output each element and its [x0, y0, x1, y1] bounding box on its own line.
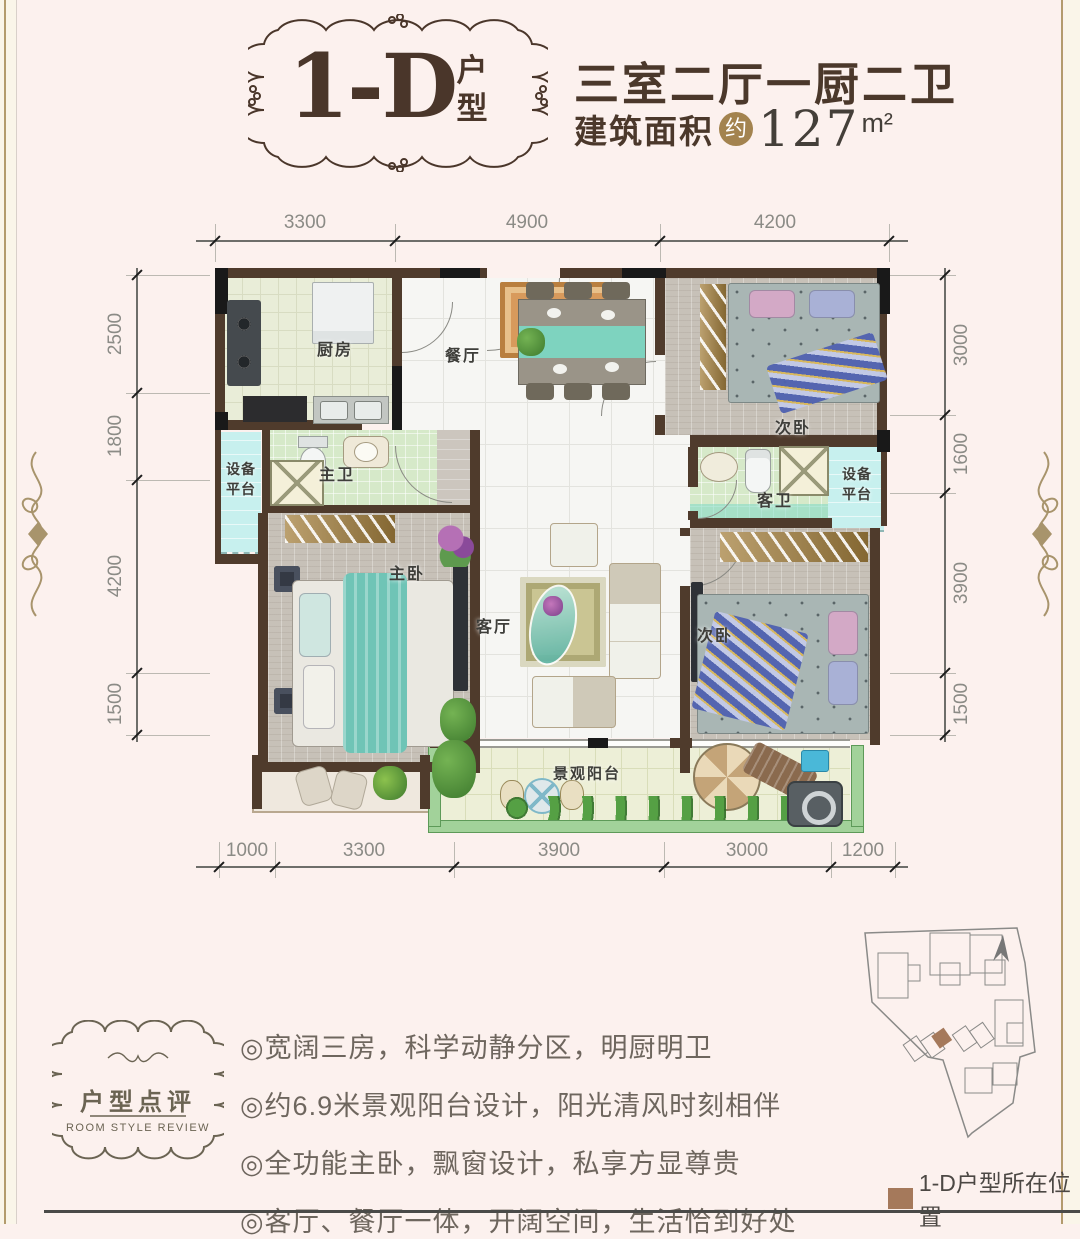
dim-top-3: 4200 — [754, 212, 796, 234]
balcony-rail-right — [851, 745, 864, 827]
badge-title: 户型点评 — [80, 1082, 196, 1117]
compass-arrow-icon — [993, 935, 1009, 962]
master-bath-shower — [270, 460, 324, 506]
master-wardrobe — [285, 515, 395, 543]
guest-bath-sink — [700, 452, 738, 482]
unit-type-label: 户 型 — [455, 52, 489, 128]
dim-right-4: 1500 — [951, 683, 973, 725]
living-window — [480, 739, 588, 748]
room-label-master-bedroom: 主卧 — [389, 560, 425, 584]
floor-plan: 厨房 餐厅 次卧 主卫 设备平台 主卧 客厅 客卫 设备平台 次卧 景观阳台 — [213, 266, 890, 832]
bottom-divider — [44, 1210, 1080, 1213]
fridge — [312, 282, 374, 344]
badge-subtitle: ROOM STYLE REVIEW — [66, 1122, 210, 1134]
legend-row: 1-D户型所在位置 — [888, 1164, 1080, 1232]
unit-type-char-2: 型 — [455, 90, 489, 128]
room-label-guest-bath: 客卫 — [757, 487, 793, 511]
ac-unit — [787, 781, 843, 827]
right-flourish-ornament-icon — [1010, 444, 1074, 624]
balcony-planter-row — [505, 796, 835, 820]
area-label: 建筑面积 — [574, 105, 714, 153]
room-label-dining: 餐厅 — [445, 342, 481, 366]
review-bullet-1: ◎宽阔三房，科学动静分区，明厨明卫 — [240, 1026, 797, 1065]
dining-table — [518, 299, 646, 385]
dim-left-1: 2500 — [105, 313, 127, 355]
sofa-right — [609, 563, 661, 679]
trefoil-left-icon — [249, 86, 260, 105]
dim-top-1: 3300 — [284, 212, 326, 234]
dim-right-2: 1600 — [951, 433, 973, 475]
unit-type-char-1: 户 — [455, 52, 489, 90]
master-bed — [292, 580, 454, 747]
area-unit: m² — [861, 108, 892, 151]
room-label-master-bath: 主卫 — [319, 461, 355, 485]
legend-swatch — [888, 1188, 913, 1209]
tv-cabinet — [453, 565, 468, 691]
review-bullet-3: ◎全功能主卧，飘窗设计，私享方显尊贵 — [240, 1142, 797, 1181]
review-bullets: ◎宽阔三房，科学动静分区，明厨明卫 ◎约6.9米景观阳台设计，阳光清风时刻相伴 … — [240, 1026, 797, 1239]
dim-bottom-2: 3300 — [343, 840, 385, 862]
dim-left-4: 1500 — [105, 683, 127, 725]
kitchen-sink — [313, 396, 389, 424]
dim-left-3: 4200 — [105, 555, 127, 597]
dim-left-2: 1800 — [105, 415, 127, 457]
room-label-balcony: 景观阳台 — [553, 763, 621, 784]
room-label-living: 客厅 — [476, 613, 512, 637]
dim-top-2: 4900 — [506, 212, 548, 234]
bay-plant — [373, 766, 407, 800]
room-label-kitchen: 厨房 — [317, 336, 353, 360]
review-bullet-4: ◎客厅、餐厅一体，开阔空间，生活恰到好处 — [240, 1200, 797, 1239]
hall-window — [608, 739, 670, 748]
armchair — [550, 523, 598, 567]
dim-bottom-1: 1000 — [226, 840, 268, 862]
review-badge: 户型点评 ROOM STYLE REVIEW — [52, 1020, 224, 1160]
coffee-table-flowers — [543, 596, 563, 616]
trefoil-right-icon — [536, 86, 547, 105]
dim-right-3: 3900 — [951, 562, 973, 604]
area-row: 建筑面积 约 127 m² — [574, 100, 893, 158]
room-label-bedroom2: 次卧 — [697, 622, 733, 646]
legend-label: 1-D户型所在位置 — [919, 1164, 1080, 1232]
room-label-bedroom1: 次卧 — [775, 414, 811, 438]
flower-pot-top — [438, 523, 474, 567]
page: { "header": { "unit_code": "1-D", "unit_… — [0, 0, 1080, 1224]
room-label-equipment-right: 设备平台 — [842, 464, 872, 504]
area-value: 127 — [758, 100, 859, 158]
balcony-shrub-left — [432, 740, 476, 798]
site-plan — [845, 905, 1055, 1145]
dim-bottom-4: 3000 — [726, 840, 768, 862]
bedroom1-wardrobe — [700, 284, 726, 390]
stove — [227, 300, 261, 386]
room-label-equipment-left: 设备平台 — [226, 459, 256, 499]
site-plan-unit-marker — [931, 1028, 952, 1049]
kitchen-counter-dark — [243, 396, 307, 422]
table-plant — [517, 328, 545, 356]
review-bullet-2: ◎约6.9米景观阳台设计，阳光清风时刻相伴 — [240, 1084, 797, 1123]
bedroom2-wardrobe — [720, 532, 868, 562]
bedroom2-bed — [697, 594, 869, 734]
balcony-side-table-blue — [801, 750, 829, 772]
badge-flourish-icon — [108, 1053, 168, 1062]
dim-right-1: 3000 — [951, 324, 973, 366]
bedroom1-bed — [728, 283, 880, 403]
unit-code: 1-D — [288, 34, 456, 138]
approx-badge: 约 — [719, 112, 753, 146]
plant-pot-bottom — [440, 698, 476, 742]
left-flourish-ornament-icon — [6, 444, 70, 624]
dim-bottom-3: 3900 — [538, 840, 580, 862]
sofa-bottom — [532, 676, 616, 728]
dim-bottom-5: 1200 — [842, 840, 884, 862]
